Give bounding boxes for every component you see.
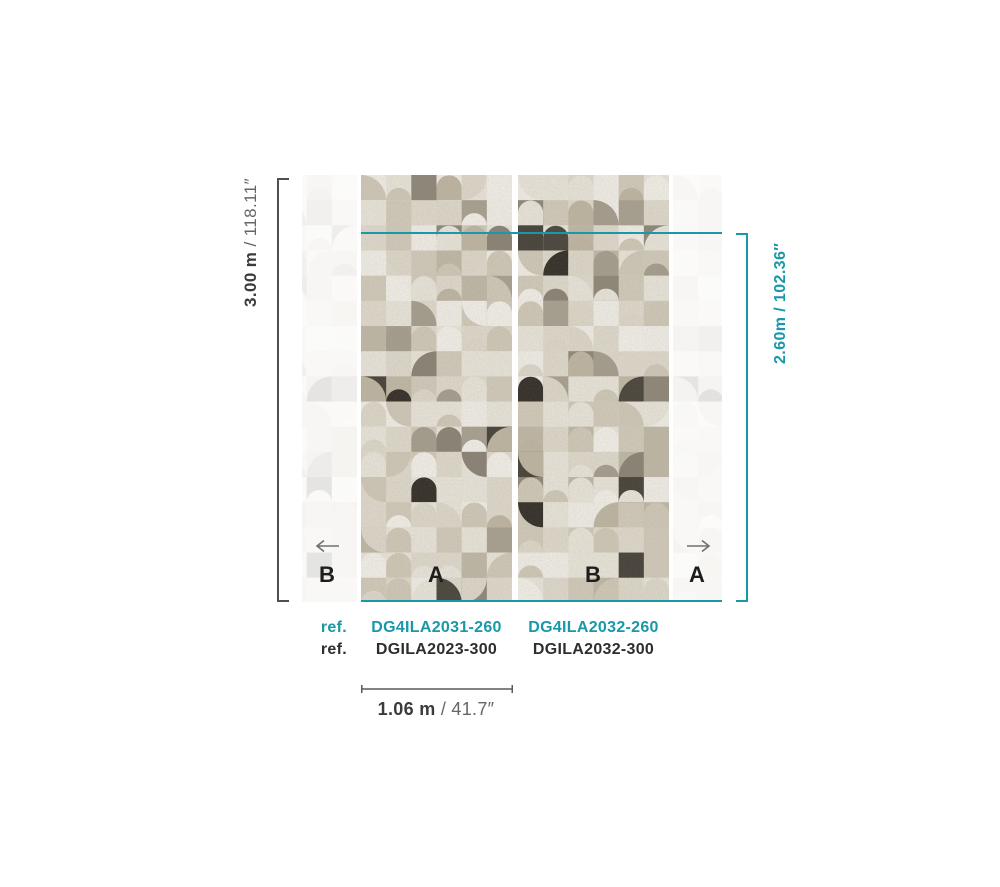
wallpaper-dimension-diagram: 3.00 m / 118.11″ 2.60m / 102.36″ B A B A…: [0, 0, 1000, 887]
width-metric: 1.06 m: [378, 699, 436, 719]
height-separator: /: [241, 236, 260, 251]
panel-letter-b: B: [578, 562, 608, 588]
width-dimension-label: 1.06 m / 41.7″: [326, 699, 546, 720]
drop-imperial: 102.36″: [772, 243, 789, 302]
drop-separator: /: [772, 302, 789, 317]
drop-metric: 2.60m: [772, 317, 789, 364]
ref-label-300: ref.: [313, 641, 347, 659]
height-dimension-label: 3.00 m / 118.11″: [241, 178, 261, 307]
width-imperial: 41.7″: [451, 699, 494, 719]
ref-260-panel-a: DG4ILA2031-260: [361, 619, 512, 637]
panel-letter-a: A: [421, 562, 451, 588]
width-separator: /: [436, 699, 452, 719]
drop-measure-bracket: [736, 233, 748, 602]
height-measure-bracket: [277, 178, 289, 602]
wallpaper-panel-a: [361, 175, 512, 602]
height-imperial: 118.11″: [241, 178, 260, 236]
drop-top-measure-line: [361, 232, 722, 234]
width-measure-line: [361, 684, 513, 694]
ref-260-panel-b: DG4ILA2032-260: [518, 619, 669, 637]
wallpaper-panel-b: [518, 175, 669, 602]
arrow-left-icon: [313, 538, 341, 554]
drop-bottom-measure-line: [361, 600, 722, 602]
height-metric: 3.00 m: [241, 252, 260, 307]
ref-label-260: ref.: [313, 619, 347, 637]
ref-300-panel-b: DGILA2032-300: [518, 641, 669, 659]
drop-dimension-label: 2.60m / 102.36″: [772, 243, 790, 364]
arrow-right-icon: [685, 538, 713, 554]
panel-letter-repeat-left: B: [312, 562, 342, 588]
ref-300-panel-a: DGILA2023-300: [361, 641, 512, 659]
panel-letter-repeat-right: A: [682, 562, 712, 588]
